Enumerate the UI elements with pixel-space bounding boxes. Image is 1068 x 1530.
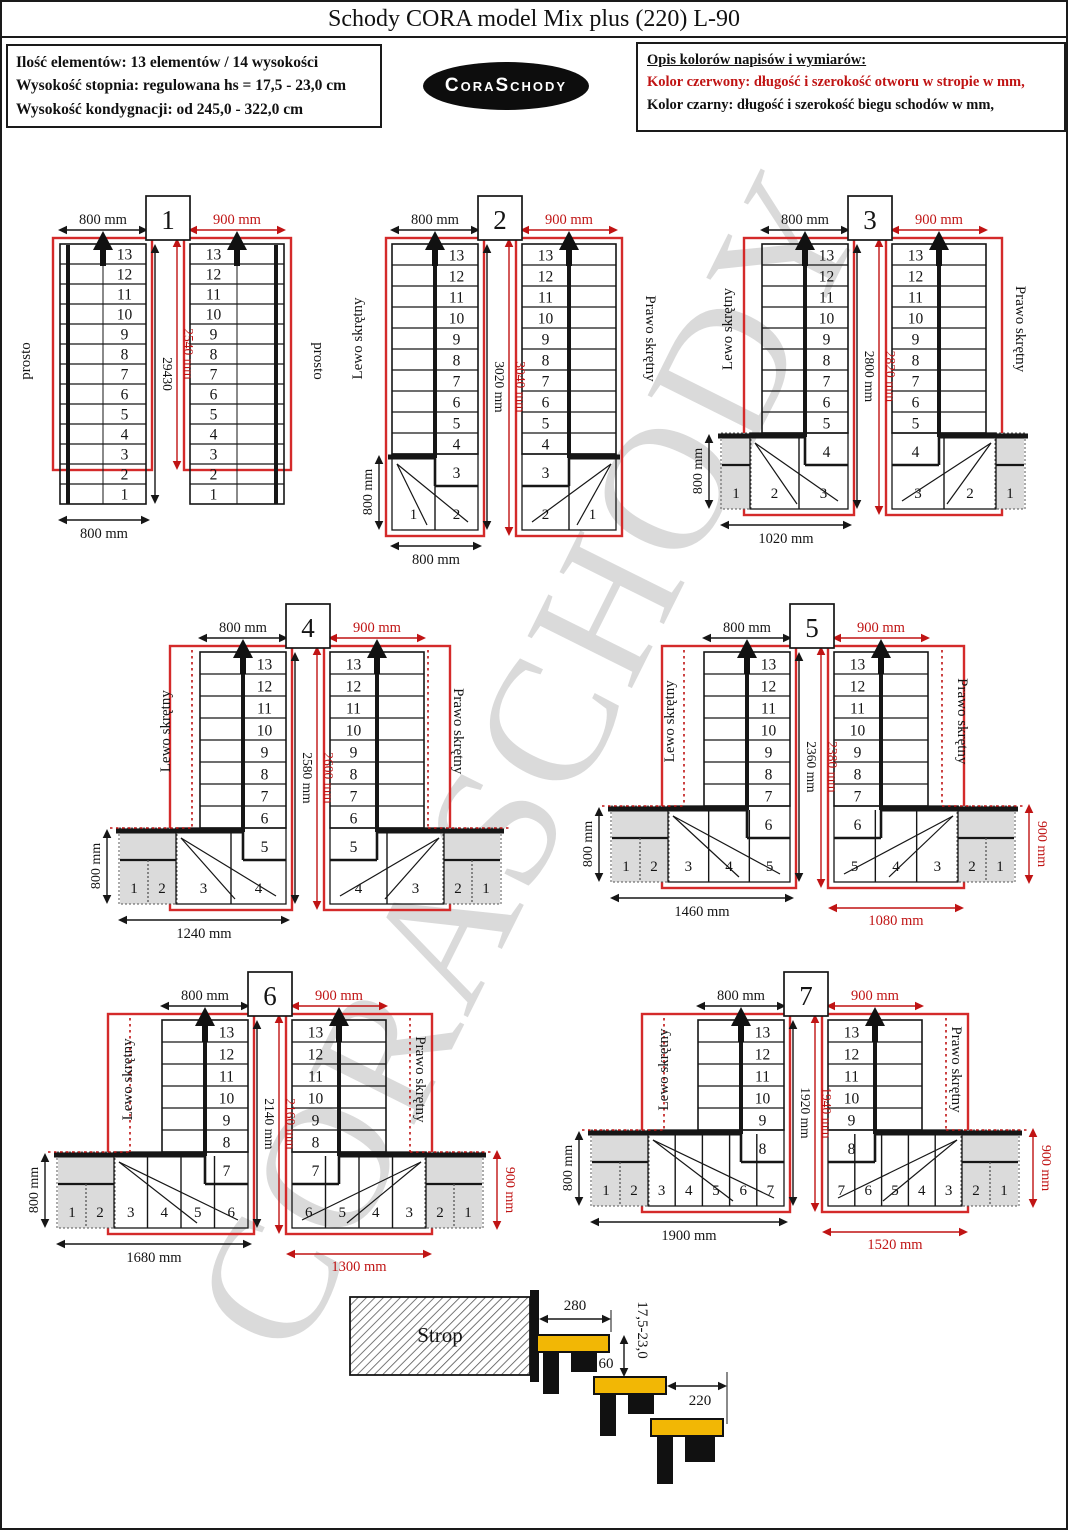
step-number: 5 (542, 416, 550, 433)
step-number: 11 (206, 287, 221, 304)
step-number: 6 (350, 811, 358, 828)
step-number: 13 (908, 248, 924, 265)
arrowhead-icon (173, 461, 182, 470)
arrowhead-icon (760, 226, 769, 235)
dim-label: 1680 mm (126, 1250, 182, 1266)
step-number: 13 (761, 657, 777, 674)
dim-label: 2160 mm (283, 1098, 298, 1150)
step-number: 8 (121, 347, 129, 364)
stair-diagram-3: 13121110987654123800 mm1020 mm800 mmLewo… (676, 194, 1064, 561)
dim-label: 800 mm (79, 212, 128, 228)
arrowhead-icon (423, 1250, 432, 1259)
arrowhead-icon (865, 1007, 885, 1026)
dim-label: 900 mm (545, 212, 594, 228)
step-number: 11 (346, 701, 361, 718)
winder-step-number: 4 (372, 1205, 380, 1221)
arrowhead-icon (609, 226, 618, 235)
step-number: 6 (912, 395, 920, 412)
step-number: 9 (848, 1113, 856, 1130)
step-number: 7 (261, 789, 269, 806)
arrowhead-icon (56, 1240, 65, 1249)
arrowhead-icon (559, 231, 579, 250)
winder-step-number: 3 (945, 1183, 953, 1199)
winder-step-number: 4 (892, 859, 900, 875)
arrowhead-icon (929, 231, 949, 250)
coraschody-logo: CoraSchody (423, 62, 589, 110)
winder-step-number: 3 (658, 1183, 666, 1199)
direction-arrow-stem (202, 1025, 208, 1042)
step-number: 4 (121, 427, 129, 444)
dim-label: 800 mm (411, 212, 460, 228)
step-number: 12 (761, 679, 777, 696)
arrowhead-icon (233, 639, 253, 658)
step-number: 4 (453, 437, 461, 454)
step-riser-bar (600, 1394, 616, 1436)
dim-label: 900 mm (1034, 821, 1049, 867)
winder-step-number: 1 (589, 507, 597, 523)
step-number: 9 (759, 1113, 767, 1130)
step-number: 3 (542, 465, 550, 482)
dim-label: 2140 mm (262, 1098, 277, 1150)
dim-label: 900 mm (857, 620, 906, 636)
arrowhead-icon (141, 516, 150, 525)
step-number: 10 (206, 307, 222, 324)
step-number: 12 (908, 269, 924, 286)
direction-arrow-stem (738, 1025, 744, 1042)
step-number: 12 (346, 679, 362, 696)
arrowhead-icon (417, 634, 426, 643)
variant-side-label: Prawo skrętny (450, 688, 466, 775)
step-number: 7 (765, 789, 773, 806)
arrowhead-icon (595, 873, 604, 882)
dim-label: 800 mm (561, 1145, 576, 1191)
arrowhead-icon (93, 231, 113, 250)
step-number: 13 (844, 1025, 860, 1042)
stair-diagram-6: 13121110987123456800 mm1680 mm800 mmLewo… (12, 970, 530, 1286)
step-number: 10 (538, 311, 554, 328)
step-number: 4 (823, 444, 831, 461)
winder-step-number: 3 (914, 486, 922, 502)
info-line-storey-height: Wysokość kondygnacji: od 245,0 - 322,0 c… (16, 98, 372, 121)
variant-side-label: prosto (310, 342, 326, 380)
step-number: 9 (854, 745, 862, 762)
step-number: 8 (823, 353, 831, 370)
catalog-page: Schody CORA model Mix plus (220) L-90 Il… (0, 0, 1068, 1530)
winder-step-number: 2 (771, 486, 779, 502)
step-number: 13 (219, 1025, 235, 1042)
step-number: 13 (819, 248, 835, 265)
step-number: 5 (350, 839, 358, 856)
step-number: 13 (257, 657, 273, 674)
step-number: 11 (908, 290, 923, 307)
arrowhead-icon (286, 1250, 295, 1259)
diagram-number: 3 (863, 205, 877, 235)
step-number: 9 (453, 332, 461, 349)
arrowhead-icon (539, 1315, 548, 1324)
winder-step-number: 1 (996, 859, 1004, 875)
step-number: 12 (117, 267, 133, 284)
dim-label: 900 mm (851, 988, 900, 1004)
step-number: 11 (761, 701, 776, 718)
step-number: 10 (844, 1091, 860, 1108)
step-number: 9 (121, 327, 129, 344)
winder-step-number: 4 (161, 1205, 169, 1221)
diagram-number: 4 (301, 613, 315, 643)
page-title: Schody CORA model Mix plus (220) L-90 (328, 6, 740, 33)
arrowhead-icon (737, 639, 757, 658)
winder-step-number: 7 (767, 1183, 775, 1199)
dim-label: 2380 mm (825, 741, 840, 793)
step-number: 12 (257, 679, 273, 696)
variant-side-label: Lewo skrętny (720, 288, 736, 371)
dim-label: 900 mm (315, 988, 364, 1004)
arrowhead-icon (198, 634, 207, 643)
arrowhead-icon (379, 1002, 388, 1011)
winder-step-number: 5 (851, 859, 859, 875)
step-number: 5 (121, 407, 129, 424)
step-number: 9 (823, 332, 831, 349)
info-box: Ilość elementów: 13 elementów / 14 wysok… (6, 44, 382, 128)
arrowhead-icon (473, 542, 482, 551)
stair-diagram-2: 13121110987654312800 mm800 mm800 mmLewo … (346, 194, 656, 582)
step-number: 3 (121, 447, 129, 464)
arrowhead-icon (493, 1221, 502, 1230)
step-number: 9 (210, 327, 218, 344)
direction-arrow-stem (336, 1025, 342, 1042)
arrowhead-icon (118, 916, 127, 925)
arrowhead-icon (575, 1197, 584, 1206)
winder-step-number: 5 (891, 1183, 899, 1199)
winder-step-number: 5 (766, 859, 774, 875)
dim-label: 2360 mm (804, 741, 819, 793)
arrowhead-icon (313, 901, 322, 910)
step-number: 10 (117, 307, 133, 324)
arrowhead-icon (822, 1228, 831, 1237)
dim-label: 2540 mm (181, 328, 196, 380)
step-number: 11 (449, 290, 464, 307)
winder-step-number: 2 (158, 881, 166, 897)
step-number: 13 (755, 1025, 771, 1042)
step-number: 6 (453, 395, 461, 412)
arrowhead-icon (590, 1218, 599, 1227)
step-riser-bar (657, 1436, 673, 1484)
step-number: 7 (121, 367, 129, 384)
step-number: 7 (854, 789, 862, 806)
arrowhead-icon (227, 231, 247, 250)
variant-side-label: Prawo skrętny (642, 295, 658, 382)
winder-step-number: 3 (685, 859, 693, 875)
step-number: 9 (542, 332, 550, 349)
dim-label: 2580 mm (300, 752, 315, 804)
arrowhead-icon (828, 904, 837, 913)
step-number: 4 (912, 444, 920, 461)
direction-arrow-stem (878, 657, 884, 674)
winder-step-number: 6 (305, 1205, 313, 1221)
arrowhead-icon (1025, 804, 1034, 813)
step-number: 2 (121, 467, 129, 484)
step-number: 13 (117, 247, 133, 264)
step-number: 11 (308, 1069, 323, 1086)
winder-step-number: 2 (650, 859, 658, 875)
arrowhead-icon (811, 1203, 820, 1212)
arrowhead-icon (375, 521, 384, 530)
diagram-number: 7 (799, 981, 813, 1011)
winder-step-number: 3 (200, 881, 208, 897)
dim-label: 800 mm (781, 212, 830, 228)
arrowhead-icon (959, 1228, 968, 1237)
winder-step-number: 3 (820, 486, 828, 502)
step-number: 11 (819, 290, 834, 307)
arrowhead-icon (160, 1002, 169, 1011)
variant-side-label: Lewo skrętny (662, 680, 678, 763)
dim-label: 800 mm (181, 988, 230, 1004)
direction-arrow-stem (802, 249, 808, 266)
step-number: 4 (210, 427, 218, 444)
step-number: 9 (312, 1113, 320, 1130)
arrowhead-icon (779, 1218, 788, 1227)
arrowhead-icon (696, 1002, 705, 1011)
step-number: 10 (761, 723, 777, 740)
step-number: 8 (912, 353, 920, 370)
dim-label: 2820 mm (883, 351, 898, 403)
step-number: 1 (210, 487, 218, 504)
dim-label: 800 mm (89, 843, 104, 889)
step-number: 10 (346, 723, 362, 740)
step-number: 9 (765, 745, 773, 762)
arrowhead-icon (602, 1315, 611, 1324)
step-number: 12 (219, 1047, 235, 1064)
step-number: 12 (538, 269, 554, 286)
step-number: 7 (223, 1163, 231, 1180)
winder-step-number: 2 (542, 507, 550, 523)
arrowhead-icon (817, 879, 826, 888)
arrowhead-icon (795, 231, 815, 250)
step-number: 9 (350, 745, 358, 762)
winder-step-number: 3 (127, 1205, 135, 1221)
arrowhead-icon (425, 231, 445, 250)
info-line-step-height: Wysokość stopnia: regulowana hs = 17,5 -… (16, 74, 372, 97)
winder-step-number: 2 (453, 507, 461, 523)
arrowhead-icon (58, 516, 67, 525)
step-number: 11 (850, 701, 865, 718)
legend-red-line: Kolor czerwony: długość i szerokość otwo… (647, 71, 1055, 93)
variant-side-label: prosto (18, 342, 34, 380)
direction-arrow-stem (432, 249, 438, 266)
arrowhead-icon (505, 527, 514, 536)
step-number: 3 (453, 465, 461, 482)
winder-step-number: 7 (838, 1183, 846, 1199)
arrowhead-icon (731, 1007, 751, 1026)
step-tread (651, 1419, 723, 1436)
arrowhead-icon (493, 1150, 502, 1159)
winder-step-number: 1 (622, 859, 630, 875)
step-number: 12 (850, 679, 866, 696)
arrowhead-icon (875, 506, 884, 515)
step-number: 10 (257, 723, 273, 740)
arrowhead-icon (955, 904, 964, 913)
info-line-elements: Ilość elementów: 13 elementów / 14 wysok… (16, 51, 372, 74)
step-number: 8 (759, 1141, 767, 1158)
dim-label: 900 mm (353, 620, 402, 636)
arrowhead-icon (41, 1153, 50, 1162)
step-number: 11 (538, 290, 553, 307)
step-number: 6 (765, 817, 773, 834)
direction-arrow-stem (872, 1025, 878, 1042)
dim-label: 280 (564, 1298, 587, 1314)
step-tread (594, 1377, 666, 1394)
step-number: 10 (908, 311, 924, 328)
direction-arrow-stem (744, 657, 750, 674)
dim-label: 800 mm (219, 620, 268, 636)
step-number: 11 (257, 701, 272, 718)
step-number: 10 (219, 1091, 235, 1108)
diagram-number: 1 (161, 205, 175, 235)
arrowhead-icon (979, 226, 988, 235)
step-number: 9 (912, 332, 920, 349)
winder-step-number: 3 (406, 1205, 414, 1221)
arrowhead-icon (329, 1007, 349, 1026)
title-bar: Schody CORA model Mix plus (220) L-90 (2, 2, 1066, 38)
variant-side-label: Prawo skrętny (412, 1036, 428, 1123)
step-number: 12 (206, 267, 222, 284)
dim-label: 800 mm (361, 469, 376, 515)
step-number: 6 (823, 395, 831, 412)
winder-step-number: 2 (454, 881, 462, 897)
arrowhead-icon (620, 1368, 629, 1377)
dim-label: 220 (689, 1393, 712, 1409)
dim-label: 1520 mm (867, 1237, 923, 1253)
diagram-number: 6 (263, 981, 277, 1011)
arrowhead-icon (575, 1131, 584, 1140)
arrowhead-icon (375, 455, 384, 464)
arrowhead-icon (243, 1240, 252, 1249)
step-number: 8 (223, 1135, 231, 1152)
arrowhead-icon (785, 894, 794, 903)
winder-step-number: 2 (630, 1183, 638, 1199)
variant-side-label: Lewo skrętny (120, 1038, 136, 1121)
dim-label: 1920 mm (798, 1087, 813, 1139)
winder-step-number: 4 (725, 859, 733, 875)
stair-diagram-5: 13121110987612345800 mm1460 mm800 mmLewo… (566, 602, 1062, 940)
step-number: 10 (819, 311, 835, 328)
arrowhead-icon (1029, 1128, 1038, 1137)
step-number: 13 (308, 1025, 324, 1042)
winder-step-number: 4 (918, 1183, 926, 1199)
step-number: 10 (850, 723, 866, 740)
step-number: 5 (210, 407, 218, 424)
direction-arrow-stem (234, 249, 240, 266)
step-number: 7 (350, 789, 358, 806)
dim-label: 1240 mm (176, 926, 232, 942)
dim-label: 3020 mm (492, 361, 507, 413)
step-number: 8 (312, 1135, 320, 1152)
winder-step-number: 1 (464, 1205, 472, 1221)
winder-step-number: 3 (934, 859, 942, 875)
dim-label: 1940 mm (819, 1087, 834, 1139)
arrowhead-icon (151, 495, 160, 504)
step-number: 12 (308, 1047, 324, 1064)
variant-side-label: Lewo skrętny (656, 1028, 672, 1111)
dim-label: 2800 mm (862, 351, 877, 403)
step-number: 5 (823, 416, 831, 433)
arrowhead-icon (103, 829, 112, 838)
winder-step-number: 5 (712, 1183, 720, 1199)
step-number: 12 (449, 269, 465, 286)
variant-side-label: Prawo skrętny (948, 1026, 964, 1113)
step-number: 12 (844, 1047, 860, 1064)
dim-label: 800 mm (717, 988, 766, 1004)
step-number: 13 (538, 248, 554, 265)
step-number: 8 (350, 767, 358, 784)
dim-label: 1460 mm (674, 904, 730, 920)
dim-label: 17,5-23,0 (634, 1301, 650, 1359)
direction-arrow-stem (566, 249, 572, 266)
winder-step-number: 1 (482, 881, 490, 897)
step-support-block (571, 1352, 597, 1372)
step-number: 7 (912, 374, 920, 391)
stair-diagram-4: 13121110987651234800 mm1240 mm800 mmLewo… (74, 602, 540, 956)
step-number: 8 (854, 767, 862, 784)
arrowhead-icon (871, 639, 891, 658)
step-number: 11 (117, 287, 132, 304)
dim-label: 3040 mm (513, 361, 528, 413)
step-number: 2 (210, 467, 218, 484)
winder-step-number: 2 (968, 859, 976, 875)
dim-label: 900 mm (1038, 1145, 1053, 1191)
winder-step-number: 2 (96, 1205, 104, 1221)
dim-label: 1080 mm (868, 913, 924, 929)
step-number: 3 (210, 447, 218, 464)
arrowhead-icon (58, 226, 67, 235)
arrowhead-icon (720, 521, 729, 530)
arrowhead-icon (281, 916, 290, 925)
step-number: 5 (912, 416, 920, 433)
arrowhead-icon (1029, 1199, 1038, 1208)
winder-step-number: 4 (685, 1183, 693, 1199)
diagram-number: 5 (805, 613, 819, 643)
step-number: 10 (449, 311, 465, 328)
step-number: 7 (312, 1163, 320, 1180)
dim-label: 800 mm (27, 1167, 42, 1213)
step-riser-bar (543, 1352, 559, 1394)
dim-label: 800 mm (80, 526, 129, 542)
step-number: 13 (346, 657, 362, 674)
step-number: 12 (819, 269, 835, 286)
step-number: 6 (210, 387, 218, 404)
step-number: 7 (210, 367, 218, 384)
direction-arrow-stem (374, 657, 380, 674)
dim-label: 800 mm (581, 821, 596, 867)
step-number: 7 (542, 374, 550, 391)
step-number: 8 (542, 353, 550, 370)
logo-text: CoraSchody (445, 75, 567, 97)
winder-step-number: 4 (355, 881, 363, 897)
arrowhead-icon (667, 1382, 676, 1391)
winder-step-number: 1 (410, 507, 418, 523)
step-number: 9 (223, 1113, 231, 1130)
dim-label: 800 mm (723, 620, 772, 636)
dim-label: 900 mm (213, 212, 262, 228)
dim-label: 1900 mm (661, 1228, 717, 1244)
arrowhead-icon (195, 1007, 215, 1026)
arrowhead-icon (1025, 875, 1034, 884)
step-support-block (685, 1436, 715, 1462)
step-number: 7 (823, 374, 831, 391)
legend-box: Opis kolorów napisów i wymiarów: Kolor c… (636, 42, 1066, 132)
arrowhead-icon (275, 1225, 284, 1234)
step-number: 13 (449, 248, 465, 265)
winder-step-number: 1 (732, 486, 740, 502)
